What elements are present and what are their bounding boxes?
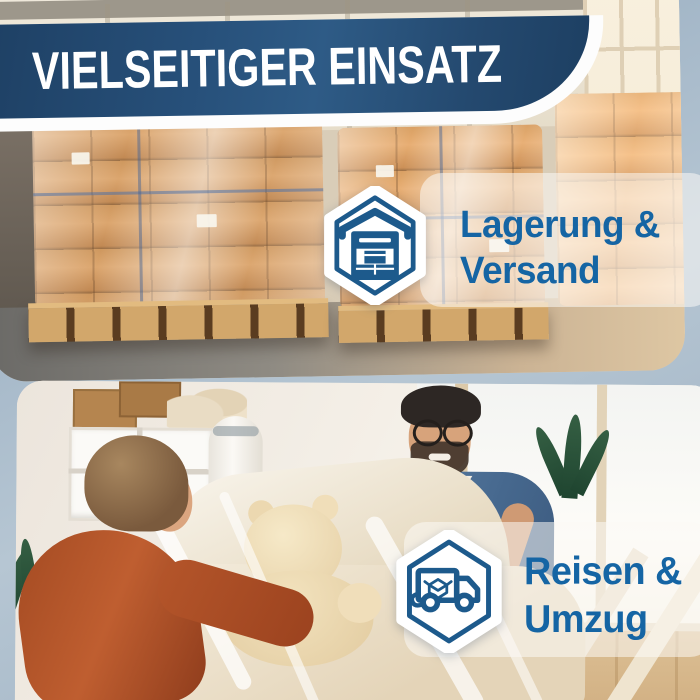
- man-hair: [401, 385, 481, 428]
- banner-ribbon-outline: VIELSEITIGER EINSATZ: [0, 15, 605, 132]
- warehouse-icon: [322, 186, 428, 305]
- moving-badge-hexagon: [394, 530, 504, 653]
- banner-ribbon: VIELSEITIGER EINSATZ: [0, 15, 591, 118]
- storage-badge-label: Lagerung & Versand: [460, 202, 666, 294]
- wooden-pallet-left: [28, 298, 329, 342]
- man-glasses: [413, 419, 443, 446]
- box-stack-left-wrap: [32, 113, 325, 308]
- man-glasses: [443, 420, 473, 447]
- infographic-canvas: VIELSEITIGER EINSATZ: [0, 0, 700, 700]
- storage-badge-hexagon: [322, 186, 428, 305]
- banner-title: VIELSEITIGER EINSATZ: [31, 17, 503, 118]
- shipping-label: [72, 152, 90, 164]
- moving-label-line1: Reisen &: [524, 548, 682, 596]
- storage-label-line2: Versand: [460, 248, 660, 294]
- foam-roll-band: [213, 426, 259, 436]
- storage-label-line1: Lagerung &: [460, 202, 660, 248]
- moving-badge-label: Reisen & Umzug: [524, 548, 687, 644]
- woman-hair: [84, 435, 189, 532]
- wooden-pallet-center: [338, 302, 549, 343]
- truck-icon: [394, 530, 504, 653]
- moving-label-line2: Umzug: [524, 596, 682, 644]
- shipping-label: [376, 165, 394, 177]
- shipping-label: [197, 214, 217, 227]
- teddy-paw: [337, 583, 381, 623]
